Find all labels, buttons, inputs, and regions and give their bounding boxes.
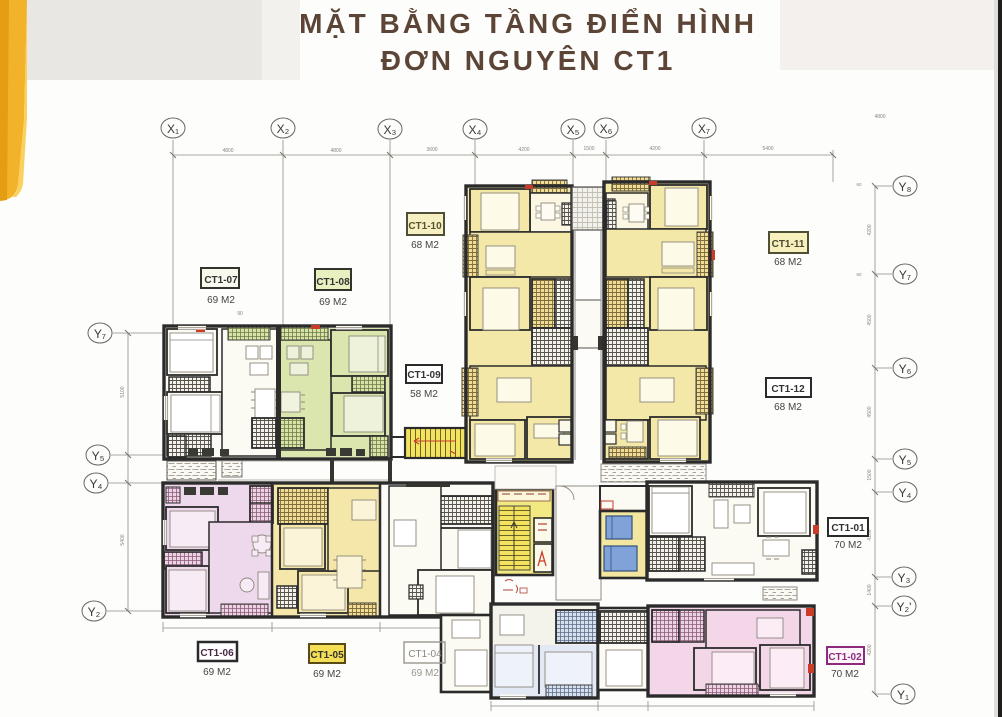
svg-text:ĐƠN NGUYÊN CT1: ĐƠN NGUYÊN CT1 (381, 45, 676, 76)
svg-text:4200: 4200 (867, 224, 873, 235)
svg-text:69 M2: 69 M2 (411, 668, 439, 679)
svg-text:CT1-11: CT1-11 (772, 239, 805, 250)
svg-text:Y₂': Y₂' (897, 600, 912, 614)
svg-text:Y₅: Y₅ (899, 453, 912, 467)
svg-text:X₅: X₅ (567, 123, 580, 137)
svg-text:Y₆: Y₆ (899, 362, 912, 376)
svg-text:4200: 4200 (649, 146, 660, 152)
svg-text:90: 90 (237, 311, 243, 317)
svg-text:CT1-08: CT1-08 (316, 277, 350, 288)
svg-text:5400: 5400 (120, 534, 126, 545)
svg-text:CT1-09: CT1-09 (407, 370, 441, 381)
svg-text:CT1-02: CT1-02 (828, 652, 862, 663)
svg-text:4800: 4800 (222, 148, 233, 154)
svg-text:Y₇: Y₇ (899, 268, 911, 282)
svg-text:Y₇: Y₇ (94, 327, 106, 341)
svg-text:70 M2: 70 M2 (834, 540, 862, 551)
svg-text:Y₄: Y₄ (90, 477, 103, 491)
svg-text:68 M2: 68 M2 (774, 402, 802, 413)
svg-text:X₆: X₆ (600, 122, 613, 136)
svg-text:60: 60 (856, 182, 862, 187)
svg-text:60: 60 (856, 272, 862, 277)
svg-text:X₃: X₃ (384, 123, 397, 137)
svg-text:4500: 4500 (867, 406, 873, 417)
svg-text:CT1-12: CT1-12 (771, 384, 805, 395)
svg-text:1500: 1500 (867, 469, 873, 480)
svg-text:58 M2: 58 M2 (410, 389, 438, 400)
svg-text:4800: 4800 (330, 148, 341, 154)
svg-text:69 M2: 69 M2 (319, 297, 347, 308)
svg-text:69 M2: 69 M2 (313, 669, 341, 680)
svg-text:CT1-05: CT1-05 (310, 650, 344, 661)
svg-text:Y₁: Y₁ (897, 688, 909, 702)
svg-text:MẶT BẰNG TẦNG ĐIỂN HÌNH: MẶT BẰNG TẦNG ĐIỂN HÌNH (299, 8, 757, 39)
svg-text:X₇: X₇ (698, 122, 710, 136)
svg-text:4800: 4800 (874, 114, 885, 120)
svg-text:CT1-10: CT1-10 (408, 221, 442, 232)
svg-text:68 M2: 68 M2 (411, 240, 439, 251)
svg-text:X₂: X₂ (277, 122, 290, 136)
svg-text:4200: 4200 (867, 644, 873, 655)
svg-text:X₁: X₁ (167, 122, 179, 136)
svg-text:CT1-06: CT1-06 (200, 648, 234, 659)
svg-text:5100: 5100 (120, 386, 126, 397)
svg-text:X₄: X₄ (469, 123, 482, 137)
svg-text:CT1-01: CT1-01 (831, 523, 865, 534)
svg-text:1500: 1500 (583, 146, 594, 152)
svg-text:Y₈: Y₈ (899, 180, 912, 194)
svg-text:69 M2: 69 M2 (203, 667, 231, 678)
svg-text:68 M2: 68 M2 (774, 257, 802, 268)
svg-text:3600: 3600 (426, 147, 437, 153)
svg-text:69 M2: 69 M2 (207, 295, 235, 306)
svg-text:Y₃: Y₃ (898, 571, 911, 585)
svg-text:CT1-07: CT1-07 (204, 275, 238, 286)
svg-text:Y₄: Y₄ (899, 486, 912, 500)
svg-text:Y₂: Y₂ (88, 605, 101, 619)
svg-text:4500: 4500 (867, 314, 873, 325)
svg-text:4200: 4200 (518, 147, 529, 153)
svg-text:70 M2: 70 M2 (831, 669, 859, 680)
svg-text:CT1-04: CT1-04 (408, 649, 442, 660)
svg-text:5400: 5400 (762, 146, 773, 152)
svg-text:Y₅: Y₅ (92, 449, 105, 463)
svg-text:1400: 1400 (867, 584, 873, 595)
